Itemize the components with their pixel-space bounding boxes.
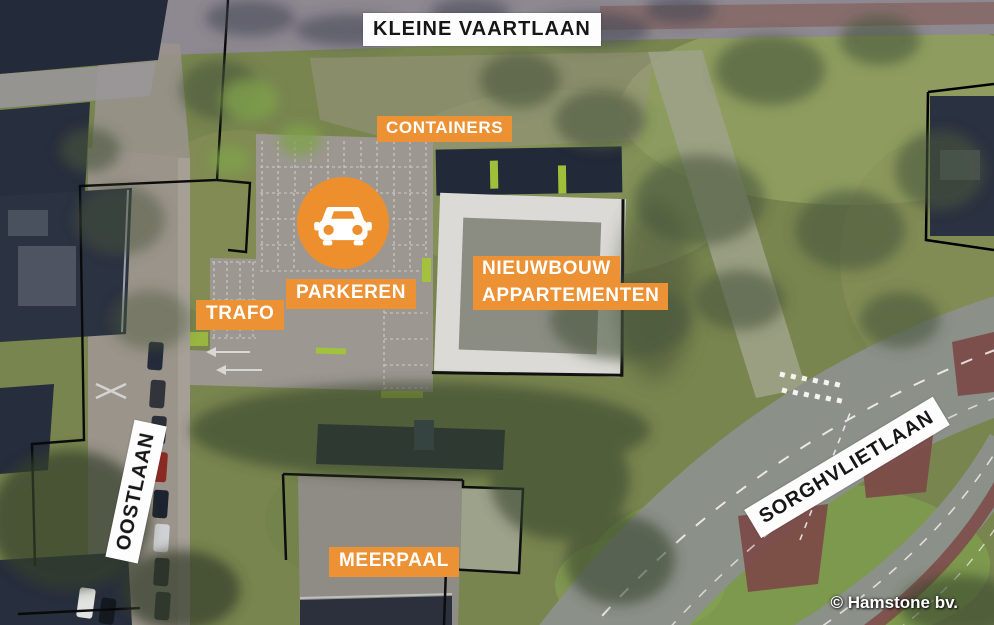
aerial-photo: [0, 0, 994, 625]
containers-area: [436, 146, 623, 195]
area-label-containers: CONTAINERS: [377, 116, 512, 142]
area-label-trafo: TRAFO: [196, 300, 284, 330]
area-label-parkeren: PARKEREN: [286, 279, 416, 309]
nieuwbouw-line2: APPARTEMENTEN: [473, 283, 668, 310]
street-label-kleine-vaartlaan: KLEINE VAARTLAAN: [363, 13, 601, 46]
copyright-credit: © Hamstone bv.: [831, 594, 958, 611]
nieuwbouw-line1: NIEUWBOUW: [473, 256, 620, 283]
area-label-nieuwbouw-appartementen: NIEUWBOUW APPARTEMENTEN: [473, 256, 668, 310]
car-icon: [311, 191, 375, 255]
parking-badge: [297, 177, 389, 269]
area-label-meerpaal: MEERPAAL: [329, 547, 459, 577]
site-plan-map: KLEINE VAARTLAAN CONTAINERS PARKEREN TRA…: [0, 0, 994, 625]
